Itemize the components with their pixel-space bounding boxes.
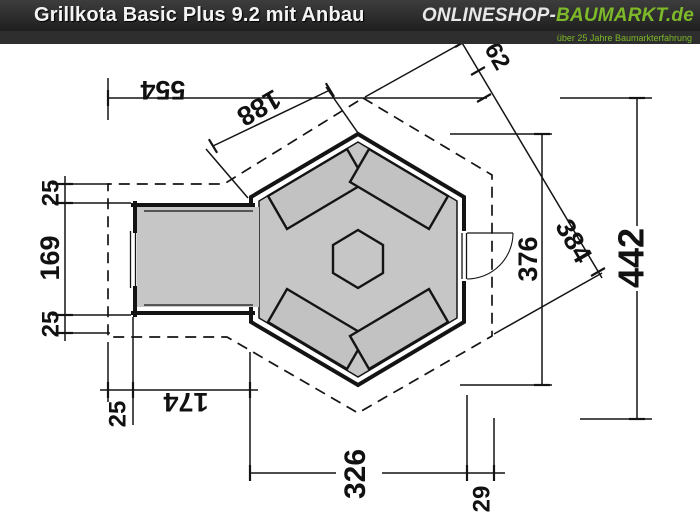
dimension-label-554: 554 xyxy=(140,75,185,105)
door-swing-arc xyxy=(467,233,513,279)
dimension-line xyxy=(365,44,460,97)
dimension-label-326: 326 xyxy=(339,449,372,499)
dimension-tick xyxy=(209,139,217,153)
header-bar: Grillkota Basic Plus 9.2 mit Anbau ONLIN… xyxy=(0,0,700,31)
dimension-label-169: 169 xyxy=(35,235,65,280)
dimension-line xyxy=(206,149,248,198)
annex-floor xyxy=(137,207,259,307)
tagline-text: über 25 Jahre Baumarkterfahrung xyxy=(557,33,700,43)
dimension-tick xyxy=(455,44,469,47)
dimension-label-174: 174 xyxy=(163,387,208,417)
door-opening xyxy=(459,231,470,281)
dimension-label-29: 29 xyxy=(468,486,495,513)
page-title: Grillkota Basic Plus 9.2 mit Anbau xyxy=(0,4,365,27)
dimension-label-376: 376 xyxy=(513,236,543,281)
shop-logo-right: BAUMARKT.de xyxy=(556,5,694,26)
dimension-label-62: 62 xyxy=(479,44,516,75)
shop-logo[interactable]: ONLINESHOP-BAUMARKT.de xyxy=(422,5,700,27)
shop-logo-left: ONLINESHOP- xyxy=(422,5,556,26)
dimension-tick xyxy=(326,83,334,97)
dimension-line xyxy=(326,87,358,133)
dimension-label-442: 442 xyxy=(611,228,652,288)
dimension-label-188: 188 xyxy=(232,83,286,132)
dimension-label-25: 25 xyxy=(37,311,64,338)
dimension-label-25: 25 xyxy=(37,180,64,207)
technical-drawing: 5541886238437644225169251742532629 xyxy=(0,44,700,525)
tagline-strip: über 25 Jahre Baumarkterfahrung xyxy=(0,31,700,44)
dimension-line xyxy=(494,273,602,334)
dimension-label-25: 25 xyxy=(104,401,131,428)
